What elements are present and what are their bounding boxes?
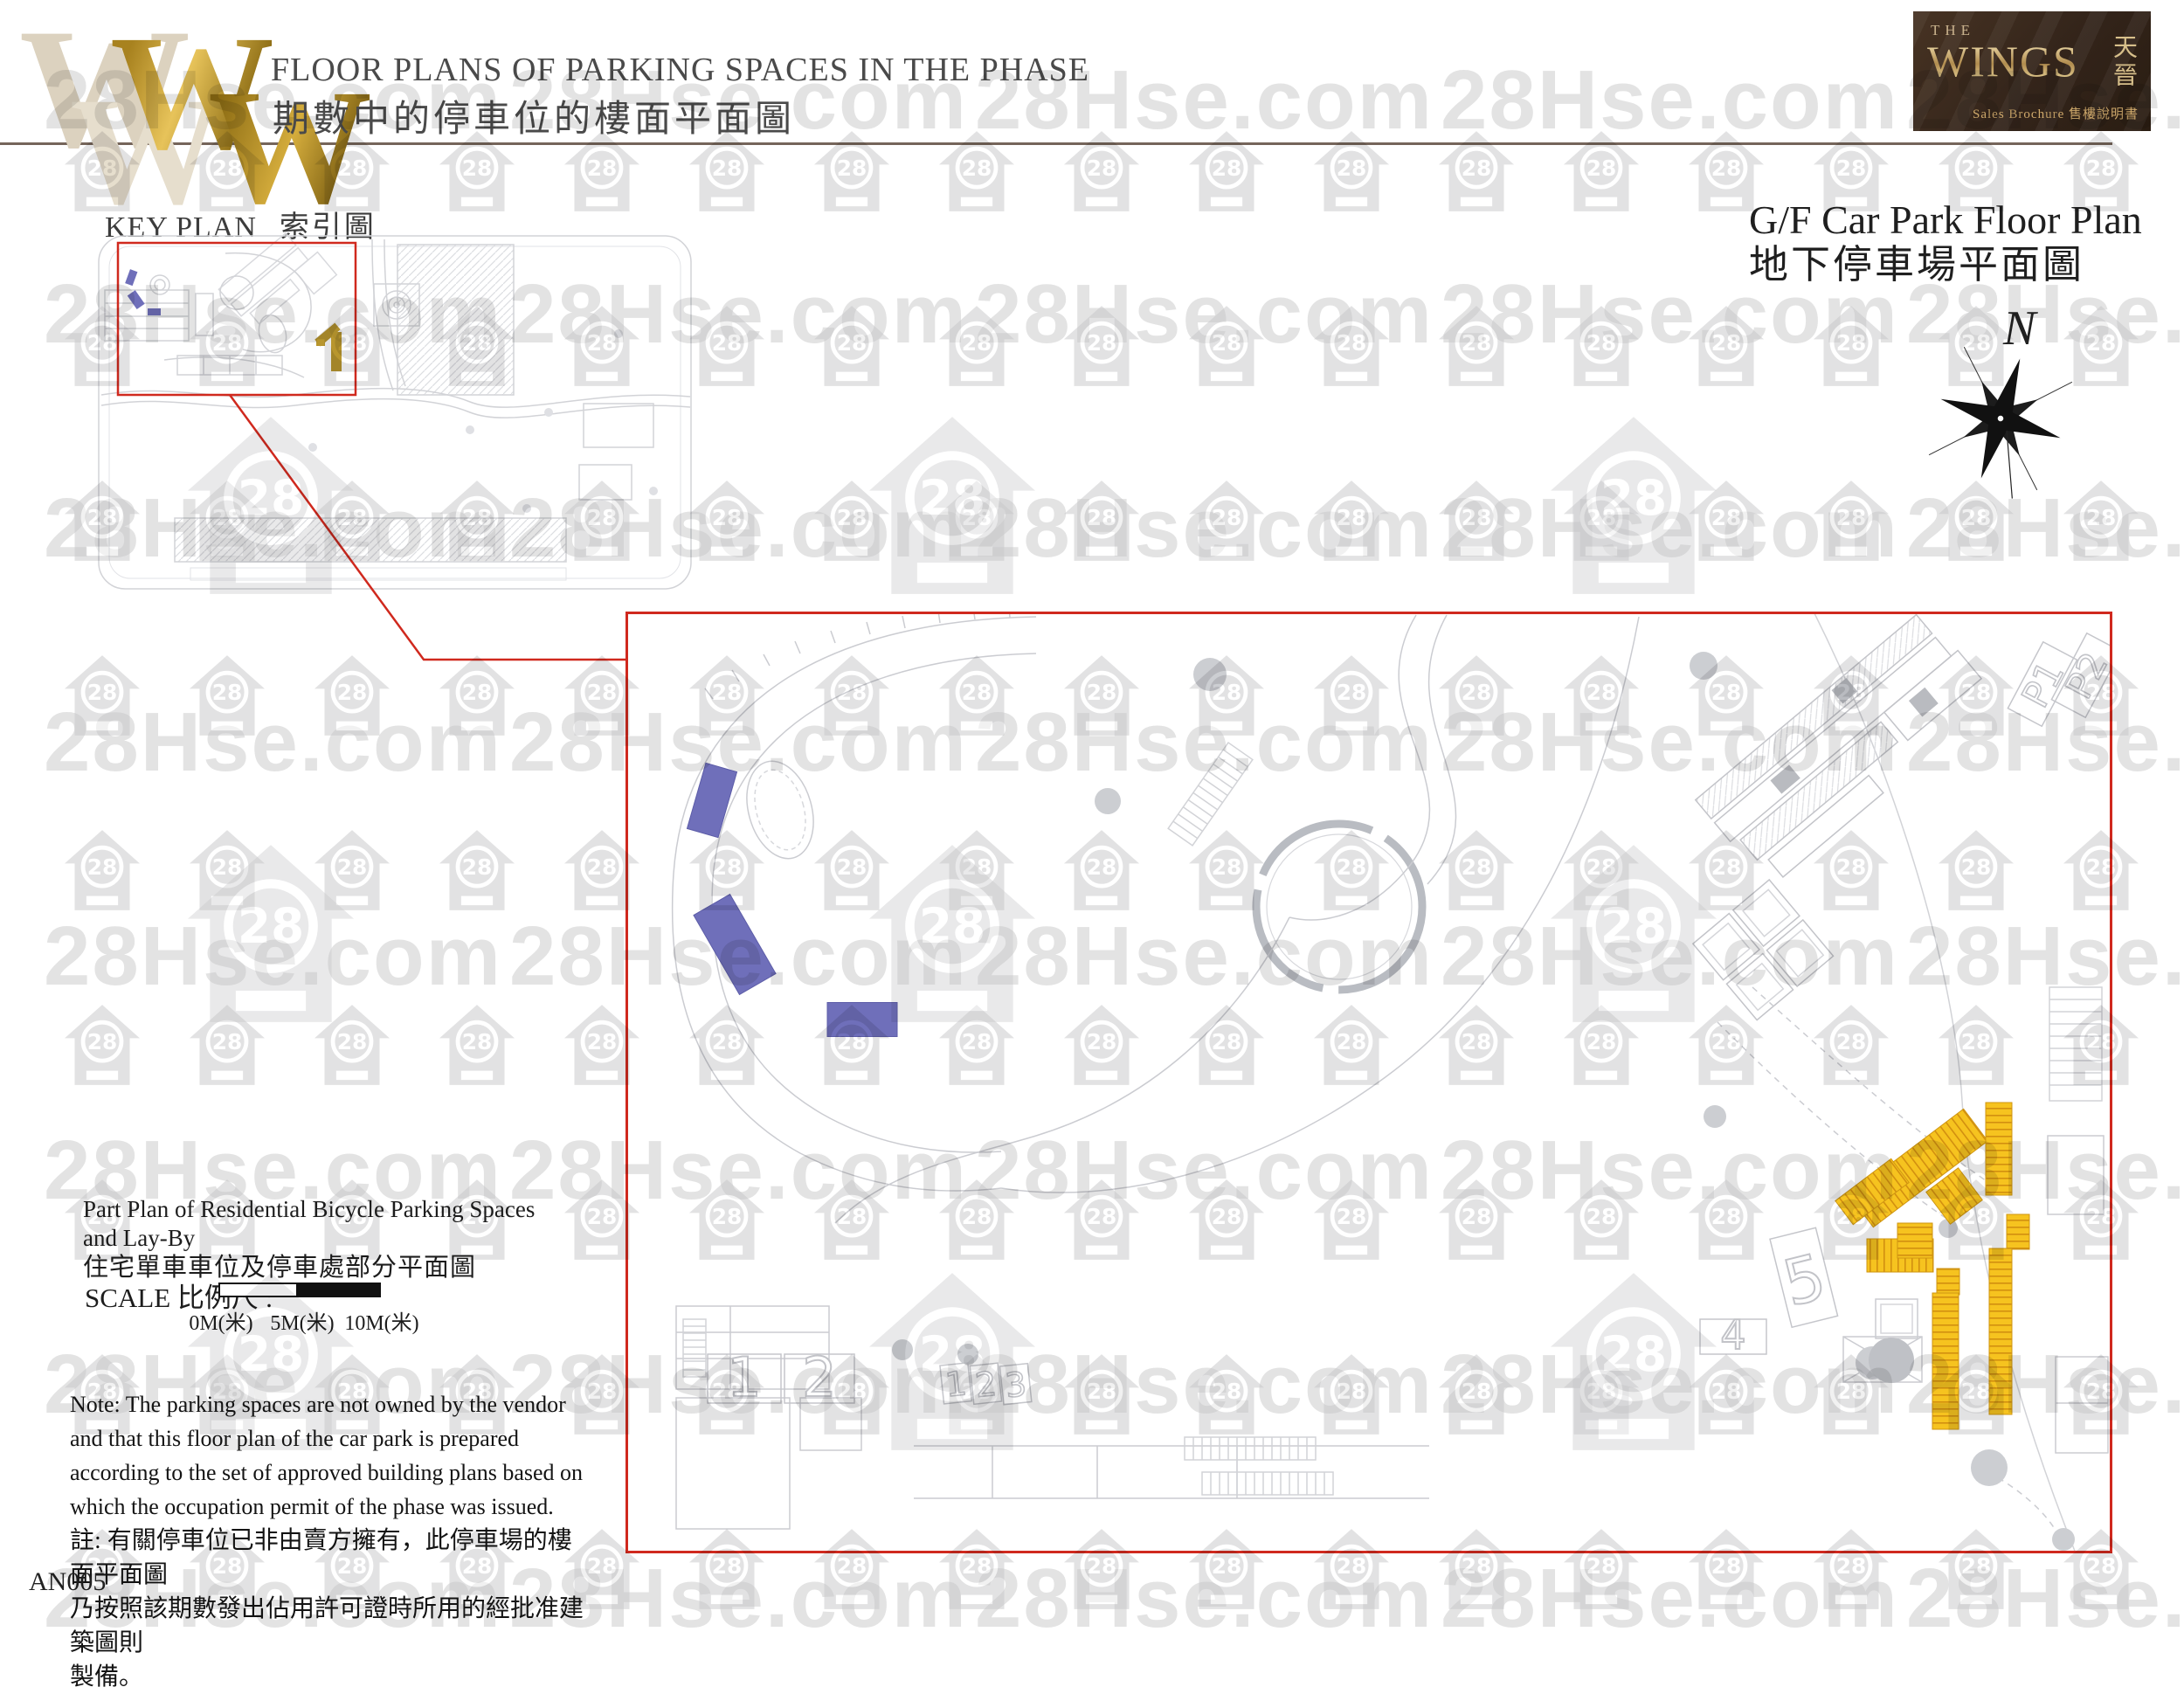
key-plan-leader-lines: [175, 384, 638, 673]
north-compass: N: [1926, 304, 2084, 514]
house-28-icon: 28: [439, 830, 515, 910]
house-28-icon: 28: [65, 830, 140, 910]
watermark-house-icon: 28: [1814, 306, 1889, 386]
svg-text:28: 28: [587, 854, 618, 880]
svg-text:28: 28: [1337, 505, 1367, 530]
watermark-house-icon: 28: [1689, 481, 1764, 561]
watermark-house-icon: 28: [689, 481, 764, 561]
svg-text:3: 3: [1003, 1365, 1028, 1405]
svg-text:28: 28: [1586, 156, 1617, 181]
watermark-house-icon: 28: [1314, 306, 1389, 386]
svg-text:28: 28: [1462, 156, 1492, 181]
house-28-icon: 28: [190, 1005, 265, 1085]
watermark-house-icon: 28: [190, 1005, 265, 1085]
watermark-house-icon: 28: [1564, 481, 1639, 561]
main-floor-plan-drawing: 1 2 1 2 3 5 4 P1 P2: [625, 612, 2112, 1553]
svg-text:28: 28: [1836, 505, 1867, 530]
watermark-house-icon: 28: [439, 830, 515, 910]
svg-text:28: 28: [87, 680, 118, 705]
svg-text:28: 28: [1337, 330, 1367, 356]
svg-text:28: 28: [1711, 1553, 1742, 1579]
svg-text:28: 28: [1600, 470, 1667, 526]
floor-plan-border: [627, 613, 2111, 1552]
svg-text:28: 28: [2086, 330, 2117, 356]
watermark-text: 28Hse.com: [1441, 1551, 1899, 1647]
scale-tick-5: 5M(米): [270, 1305, 334, 1336]
svg-text:P2: P2: [2057, 646, 2112, 706]
svg-text:1: 1: [943, 1364, 969, 1404]
svg-text:5: 5: [1776, 1240, 1833, 1321]
watermark-house-icon: 28: [1439, 481, 1514, 561]
watermark-house-icon: 28: [1189, 481, 1264, 561]
watermark-house-icon: 28: [314, 830, 390, 910]
house-28-icon: 28: [1064, 306, 1139, 386]
watermark-house-icon: 28: [1439, 306, 1514, 386]
watermark-house-icon: 28: [1564, 306, 1639, 386]
block-number-markers: [708, 633, 2112, 1411]
watermark-house-icon: 28: [1064, 481, 1139, 561]
house-28-icon: 28: [439, 1005, 515, 1085]
floor-plan-title: G/F Car Park Floor Plan 地下停車場平面圖: [1749, 197, 2142, 287]
svg-text:28: 28: [212, 156, 243, 181]
watermark-text: 28Hse.com: [975, 1551, 1434, 1647]
svg-text:28: 28: [462, 854, 493, 880]
house-28-icon: 28: [869, 417, 1035, 594]
house-28-icon: 28: [1314, 481, 1389, 561]
house-28-icon: 28: [814, 306, 889, 386]
svg-text:28: 28: [712, 1553, 743, 1579]
watermark-house-icon: 28: [439, 1005, 515, 1085]
house-28-icon: 28: [1189, 306, 1264, 386]
svg-text:28: 28: [1586, 330, 1617, 356]
house-28-icon: 28: [1314, 306, 1389, 386]
house-28-icon: 28: [65, 1005, 140, 1085]
svg-text:28: 28: [587, 1029, 618, 1054]
scale-bar-filled-half: [296, 1283, 381, 1297]
svg-text:28: 28: [837, 1553, 867, 1579]
part-plan-caption: Part Plan of Residential Bicycle Parking…: [83, 1195, 535, 1283]
watermark-house-icon-large: 28: [869, 417, 1035, 594]
svg-text:28: 28: [1212, 505, 1242, 530]
page-title-chinese: 期數中的停車位的樓面平面圖: [273, 89, 795, 142]
header-divider: [0, 142, 2112, 145]
logo-letter: W: [19, 3, 190, 175]
svg-text:28: 28: [962, 1553, 992, 1579]
watermark-house-icon: 28: [1064, 306, 1139, 386]
svg-text:28: 28: [87, 1029, 118, 1054]
svg-text:28: 28: [712, 505, 743, 530]
watermark-house-icon-large: 28: [1551, 417, 1717, 594]
svg-text:28: 28: [919, 470, 985, 526]
svg-text:28: 28: [1462, 505, 1492, 530]
logo-letter: W: [110, 10, 274, 175]
svg-text:28: 28: [2086, 1553, 2117, 1579]
watermark-house-icon: 28: [939, 306, 1014, 386]
house-28-icon: 28: [1689, 481, 1764, 561]
svg-text:1: 1: [727, 1345, 761, 1409]
svg-text:28: 28: [1212, 330, 1242, 356]
blue-parking-spaces: [687, 763, 897, 1036]
svg-text:28: 28: [837, 330, 867, 356]
house-28-icon: 28: [314, 830, 390, 910]
svg-text:28: 28: [462, 1029, 493, 1054]
house-28-icon: 28: [689, 306, 764, 386]
svg-text:28: 28: [1836, 330, 1867, 356]
compass-rose-icon: [1926, 344, 2075, 501]
sales-brochure-badge: THE WINGS 天晉 Sales Brochure 售樓說明書: [1913, 11, 2151, 131]
watermark-text: 28Hse.com: [975, 266, 1434, 363]
watermark-text: 28Hse.com: [975, 481, 1434, 577]
house-28-icon: 28: [314, 1005, 390, 1085]
yellow-bicycle-parking-stalls: [1835, 1103, 2029, 1429]
badge-tagline: Sales Brochure 售樓說明書: [1973, 104, 2139, 122]
watermark-house-icon: 28: [1189, 306, 1264, 386]
watermark-house-icon: 28: [314, 1005, 390, 1085]
svg-text:28: 28: [962, 156, 992, 181]
watermark-text: 28Hse.com: [44, 695, 502, 791]
house-28-icon: 28: [1814, 306, 1889, 386]
watermark-house-icon: 28: [814, 481, 889, 561]
key-plan-highlight-box: [118, 243, 356, 395]
svg-text:28: 28: [1462, 330, 1492, 356]
svg-text:28: 28: [1961, 1553, 1992, 1579]
svg-text:28: 28: [337, 1029, 368, 1054]
svg-text:28: 28: [212, 854, 243, 880]
house-28-icon: 28: [1564, 481, 1639, 561]
watermark-text: 28Hse.com: [44, 909, 502, 1005]
svg-text:28: 28: [1836, 156, 1867, 181]
watermark-house-icon: 28: [1814, 481, 1889, 561]
house-28-icon: 28: [689, 481, 764, 561]
house-28-icon: 28: [1439, 481, 1514, 561]
house-28-icon: 28: [1564, 306, 1639, 386]
svg-text:4: 4: [1720, 1311, 1745, 1359]
svg-text:28: 28: [712, 156, 743, 181]
svg-text:28: 28: [1711, 505, 1742, 530]
svg-text:28: 28: [1212, 1553, 1242, 1579]
svg-text:28: 28: [238, 898, 304, 954]
svg-text:28: 28: [587, 680, 618, 705]
watermark-house-icon: 28: [190, 830, 265, 910]
house-28-icon: 28: [939, 481, 1014, 561]
scale-tick-10: 10M(米): [344, 1305, 418, 1336]
svg-text:28: 28: [1836, 1553, 1867, 1579]
svg-text:28: 28: [837, 505, 867, 530]
svg-text:28: 28: [1087, 156, 1117, 181]
watermark-house-icon: 28: [814, 306, 889, 386]
watermark-house-icon: 28: [65, 830, 140, 910]
svg-text:28: 28: [1337, 1553, 1367, 1579]
house-28-icon: 28: [1814, 481, 1889, 561]
svg-text:2: 2: [802, 1345, 836, 1409]
svg-text:28: 28: [337, 156, 368, 181]
watermark-house-icon: 28: [939, 481, 1014, 561]
watermark-house-icon: 28: [1314, 481, 1389, 561]
svg-text:28: 28: [87, 854, 118, 880]
svg-text:2: 2: [973, 1365, 999, 1405]
svg-text:28: 28: [1212, 156, 1242, 181]
house-28-icon: 28: [1689, 306, 1764, 386]
svg-text:28: 28: [712, 330, 743, 356]
svg-text:28: 28: [1462, 1553, 1492, 1579]
watermark-house-icon-large: 28: [188, 845, 354, 1022]
watermark-house-icon: 28: [1689, 306, 1764, 386]
svg-text:28: 28: [837, 156, 867, 181]
sheet-code: AN005: [29, 1567, 106, 1597]
svg-text:28: 28: [962, 330, 992, 356]
svg-text:28: 28: [1711, 330, 1742, 356]
svg-text:28: 28: [587, 156, 618, 181]
watermark-house-icon: 28: [65, 655, 140, 736]
house-28-icon: 28: [1551, 417, 1717, 594]
svg-text:28: 28: [1586, 1553, 1617, 1579]
svg-text:28: 28: [1961, 156, 1992, 181]
disclaimer-note: Note: The parking spaces are not owned b…: [70, 1387, 594, 1694]
badge-brand-name: WINGS: [1927, 36, 2079, 86]
svg-text:28: 28: [2086, 505, 2117, 530]
watermark-house-icon: 28: [65, 1005, 140, 1085]
svg-text:28: 28: [1087, 330, 1117, 356]
tree-markers: [892, 652, 2075, 1551]
house-28-icon: 28: [814, 481, 889, 561]
svg-text:28: 28: [1087, 1553, 1117, 1579]
house-28-icon: 28: [65, 655, 140, 736]
house-28-icon: 28: [1439, 306, 1514, 386]
svg-text:28: 28: [462, 680, 493, 705]
svg-text:28: 28: [1337, 156, 1367, 181]
watermark-house-icon: 28: [689, 306, 764, 386]
svg-text:28: 28: [87, 156, 118, 181]
scale-bar: [218, 1283, 381, 1297]
watermark-text: 28Hse.com: [1441, 481, 1899, 577]
badge-brand-chinese: 天晉: [2105, 34, 2140, 90]
svg-text:28: 28: [1087, 505, 1117, 530]
svg-text:28: 28: [462, 156, 493, 181]
svg-text:28: 28: [212, 680, 243, 705]
page-title: FLOOR PLANS OF PARKING SPACES IN THE PHA…: [271, 51, 1089, 89]
house-28-icon: 28: [1189, 481, 1264, 561]
svg-text:28: 28: [587, 1204, 618, 1229]
svg-text:28: 28: [1711, 156, 1742, 181]
house-28-icon: 28: [939, 306, 1014, 386]
svg-text:28: 28: [2086, 156, 2117, 181]
svg-text:28: 28: [337, 854, 368, 880]
house-28-icon: 28: [1064, 481, 1139, 561]
svg-text:28: 28: [1586, 505, 1617, 530]
house-28-icon: 28: [190, 830, 265, 910]
house-28-icon: 28: [188, 845, 354, 1022]
svg-text:28: 28: [212, 1029, 243, 1054]
key-plan-gold-parking-marks: [314, 323, 342, 371]
svg-text:28: 28: [337, 680, 368, 705]
scale-tick-0: 0M(米): [189, 1305, 252, 1336]
svg-text:28: 28: [962, 505, 992, 530]
watermark-text: 28Hse.com: [1906, 1551, 2184, 1647]
watermark-text: 28Hse.com: [1441, 52, 1899, 149]
